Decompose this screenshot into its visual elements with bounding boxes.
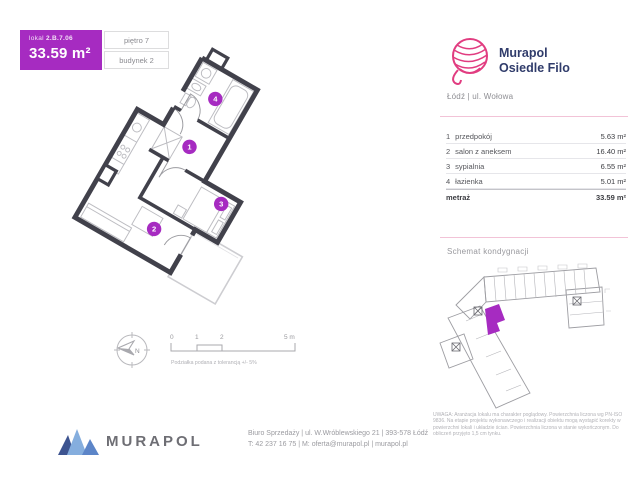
north-label: N [135,348,140,355]
table-row: 1przedpokój 5.63 m² [446,129,626,144]
room-no: 2 [446,147,450,156]
room-table: 1przedpokój 5.63 m² 2salon z aneksem 16.… [446,129,626,205]
marker-2-label: 2 [152,225,156,234]
footer-contact: Biuro Sprzedaży | ul. W.Wróblewskiego 21… [248,428,428,450]
balcony-outline [168,230,242,304]
project-logo-text: Murapol Osiedle Filo [499,46,570,76]
room-name: łazienka [455,177,483,186]
floor-plan: 4 1 3 2 [30,40,360,335]
murapol-wordmark: MURAPOL [106,433,203,450]
osiedle-filo-logo-icon [446,34,494,88]
table-row: 3sypialnia 6.55 m² [446,159,626,174]
scale-tick-2: 2 [220,334,224,341]
north-compass-icon: N [110,328,154,372]
murapol-logo-icon [58,427,100,457]
table-row: 2salon z aneksem 16.40 m² [446,144,626,159]
room-no: 4 [446,177,450,186]
furniture [78,46,289,281]
disclaimer-text: UWAGA: Aranżacja lokalu ma charakter pog… [433,412,630,438]
schematic-title: Schemat kondygnacji [447,247,529,256]
room-no: 3 [446,162,450,171]
room-area: 16.40 m² [596,147,626,156]
room-name: przedpokój [455,132,492,141]
walls [75,40,300,285]
estate-name: Osiedle Filo [499,61,570,76]
highlighted-unit [485,304,505,335]
table-total-row: metraż 33.59 m² [446,189,626,205]
room-no: 1 [446,132,450,141]
marker-hall: 1 [180,137,200,157]
marker-3-label: 3 [219,200,223,209]
footer-address: Biuro Sprzedaży | ul. W.Wróblewskiego 21… [248,428,428,439]
floor-schematic [438,259,630,409]
total-label: metraż [446,193,470,202]
brand-name: Murapol [499,46,570,61]
table-row: 4łazienka 5.01 m² [446,174,626,189]
flyer-page: lokal 2.B.7.06 33.59 m² piętro 7 budynek… [0,0,640,480]
scale-bar: 0 1 2 5 m Podziałka podana z tolerancją … [168,330,308,372]
scale-tick-1: 1 [195,334,199,341]
room-area: 6.55 m² [601,162,626,171]
scale-note: Podziałka podana z tolerancją +/- 5% [171,360,257,366]
marker-bathroom: 4 [205,89,225,109]
room-area: 5.63 m² [601,132,626,141]
room-name: sypialnia [455,162,484,171]
divider [440,237,628,238]
room-area: 5.01 m² [601,177,626,186]
room-name: salon z aneksem [455,147,511,156]
scale-tick-0: 0 [170,334,174,341]
total-value: 33.59 m² [596,193,626,202]
project-location: Łódź | ul. Wołowa [447,92,513,101]
footer-phone-email: T: 42 237 16 75 | M: oferta@murapol.pl |… [248,439,428,450]
scale-tick-5: 5 m [284,334,295,341]
divider [440,116,628,117]
